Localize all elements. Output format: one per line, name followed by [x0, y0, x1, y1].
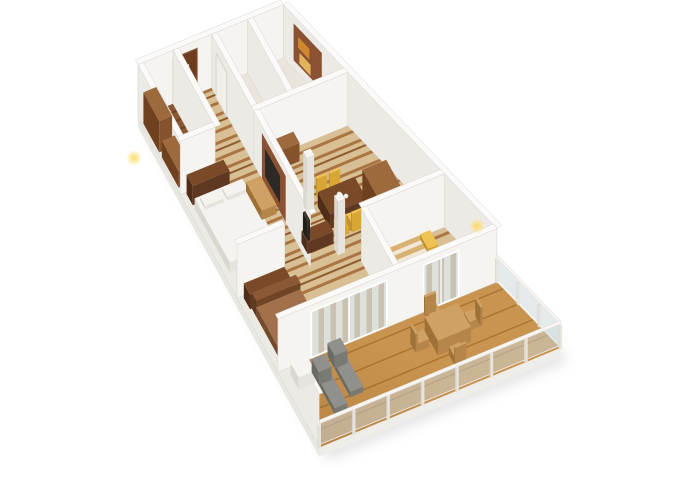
column-a	[303, 149, 314, 212]
wall-lamp-glow-1	[126, 150, 142, 166]
floorplan-3d-render	[0, 0, 680, 486]
column-b	[334, 193, 345, 256]
floorplan-canvas	[0, 0, 680, 486]
wall-lamp-glow-2	[469, 218, 485, 234]
table-cup-2	[344, 194, 348, 198]
